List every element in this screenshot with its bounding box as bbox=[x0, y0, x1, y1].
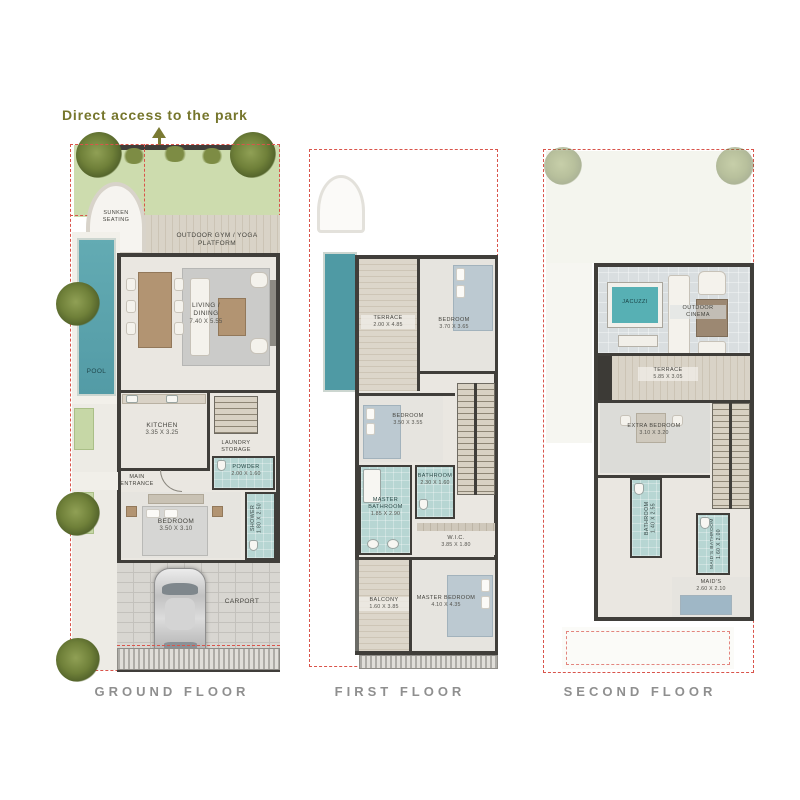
tree-icon bbox=[56, 282, 100, 326]
room-label-maids-room: MAID'S 2.60 X 2.10 bbox=[682, 579, 740, 593]
pillow bbox=[456, 285, 465, 298]
pillow bbox=[146, 509, 160, 518]
tv-console bbox=[270, 280, 276, 346]
room-label-shower: SHOWER 1.80 X 2.50 bbox=[250, 496, 263, 540]
stair-rail bbox=[474, 383, 477, 495]
armchair bbox=[250, 272, 268, 288]
second-floor-title: SECOND FLOOR bbox=[550, 684, 730, 699]
armchair bbox=[250, 338, 268, 354]
room-label-powder: POWDER 2.00 X 1.60 bbox=[220, 464, 272, 478]
lower-grate bbox=[359, 655, 498, 669]
park-access-label: Direct access to the park bbox=[62, 107, 248, 123]
toilet bbox=[419, 499, 428, 510]
dining-table bbox=[138, 272, 172, 348]
planter bbox=[74, 408, 94, 450]
interior-wall bbox=[420, 371, 498, 374]
dining-chair bbox=[174, 278, 184, 291]
room-label-extra-bedroom: EXTRA BEDROOM 3.10 X 3.20 bbox=[626, 423, 682, 437]
room-label-master-bedroom: MASTER BEDROOM 4.10 X 4.35 bbox=[415, 595, 477, 609]
bench bbox=[618, 335, 658, 347]
room-label-master-bathroom: MASTER BATHROOM 1.85 X 2.90 bbox=[361, 497, 410, 518]
room-label-outdoor-gym: OUTDOOR GYM / YOGA PLATFORM bbox=[167, 232, 267, 249]
entry-path bbox=[72, 472, 118, 490]
room-label-outdoor-cinema: OUTDOOR CINEMA bbox=[670, 305, 726, 319]
room-label-wic: W.I.C. 3.85 X 1.80 bbox=[427, 535, 485, 549]
interior-wall bbox=[117, 390, 280, 393]
second-floor-plan: JACUZZI OUTDOOR CINEMA TERRACE 5.85 X 3.… bbox=[540, 147, 757, 676]
room-label-terrace: TERRACE 2.00 X 4.85 bbox=[361, 315, 415, 329]
sink bbox=[367, 539, 379, 549]
room-label-second-bathroom: BATHROOM 1.40 X 2.55 bbox=[644, 485, 657, 551]
tree-icon bbox=[716, 147, 754, 185]
pillow bbox=[366, 423, 375, 435]
bed bbox=[680, 595, 732, 615]
room-label-main-entrance: MAIN ENTRANCE bbox=[119, 474, 155, 488]
car-icon bbox=[154, 568, 206, 660]
dining-chair bbox=[174, 322, 184, 335]
ground-floor-title: GROUND FLOOR bbox=[82, 684, 262, 699]
room-label-maids-bathroom: MAID'S BATHROOM 1.60 X 2.00 bbox=[710, 517, 722, 571]
dining-chair bbox=[126, 300, 136, 313]
planter-box bbox=[598, 356, 612, 400]
toilet bbox=[634, 483, 644, 495]
driveway-grate bbox=[117, 648, 280, 670]
room-label-living-dining: LIVING / DINING 7.40 X 5.55 bbox=[185, 302, 227, 327]
tree-icon bbox=[56, 638, 100, 682]
room-label-first-bedroom-1: BEDROOM 3.70 X 3.65 bbox=[423, 317, 485, 331]
pillow bbox=[366, 408, 375, 420]
dining-chair bbox=[174, 300, 184, 313]
nightstand bbox=[126, 506, 137, 517]
setback-dashed bbox=[566, 631, 730, 665]
pillow bbox=[481, 579, 490, 592]
dining-chair bbox=[126, 278, 136, 291]
wall-art bbox=[148, 494, 204, 504]
room-label-jacuzzi: JACUZZI bbox=[610, 299, 660, 306]
room-label-first-bathroom: BATHROOM 2.30 X 1.60 bbox=[415, 473, 455, 487]
pillow bbox=[481, 596, 490, 609]
floor-plan-sheet: Direct access to the park OUTDOOR GYM / … bbox=[0, 0, 800, 800]
room-label-ground-bedroom: BEDROOM 3.50 X 3.10 bbox=[146, 518, 206, 534]
tree-icon bbox=[56, 492, 100, 536]
room-label-carport: CARPORT bbox=[210, 598, 274, 606]
pillow bbox=[456, 268, 465, 281]
room-label-first-bedroom-2: BEDROOM 3.50 X 3.55 bbox=[379, 413, 437, 427]
interior-wall bbox=[207, 390, 210, 468]
first-floor-title: FIRST FLOOR bbox=[310, 684, 490, 699]
room-label-laundry-storage: LAUNDRY STORAGE bbox=[212, 440, 260, 454]
room-label-pool: POOL bbox=[77, 368, 116, 376]
interior-wall bbox=[409, 560, 412, 651]
toilet bbox=[700, 517, 710, 529]
room-label-kitchen: KITCHEN 3.35 X 3.25 bbox=[126, 422, 198, 438]
room-label-sunken-seating: SUNKEN SEATING bbox=[90, 210, 142, 224]
wardrobe bbox=[417, 523, 495, 531]
first-floor-plan: TERRACE 2.00 X 4.85 BEDROOM 3.70 X 3.65 … bbox=[305, 147, 500, 670]
setback-line bbox=[117, 645, 280, 646]
dining-chair bbox=[126, 322, 136, 335]
cooktop bbox=[166, 395, 178, 403]
sink bbox=[387, 539, 399, 549]
ground-floor-plan: OUTDOOR GYM / YOGA PLATFORM SUNKEN SEATI… bbox=[62, 140, 282, 676]
tree-icon bbox=[544, 147, 582, 185]
cinema-chair bbox=[698, 271, 726, 295]
room-label-balcony: BALCONY 1.60 X 3.85 bbox=[359, 597, 409, 611]
pillow bbox=[164, 509, 178, 518]
stair-rail bbox=[729, 403, 732, 509]
kitchen-sink bbox=[126, 395, 138, 403]
room-label-roof-terrace: TERRACE 5.85 X 3.05 bbox=[638, 367, 698, 381]
stairs bbox=[214, 396, 258, 434]
pool-below bbox=[323, 252, 357, 392]
toilet bbox=[249, 540, 258, 551]
nightstand bbox=[212, 506, 223, 517]
